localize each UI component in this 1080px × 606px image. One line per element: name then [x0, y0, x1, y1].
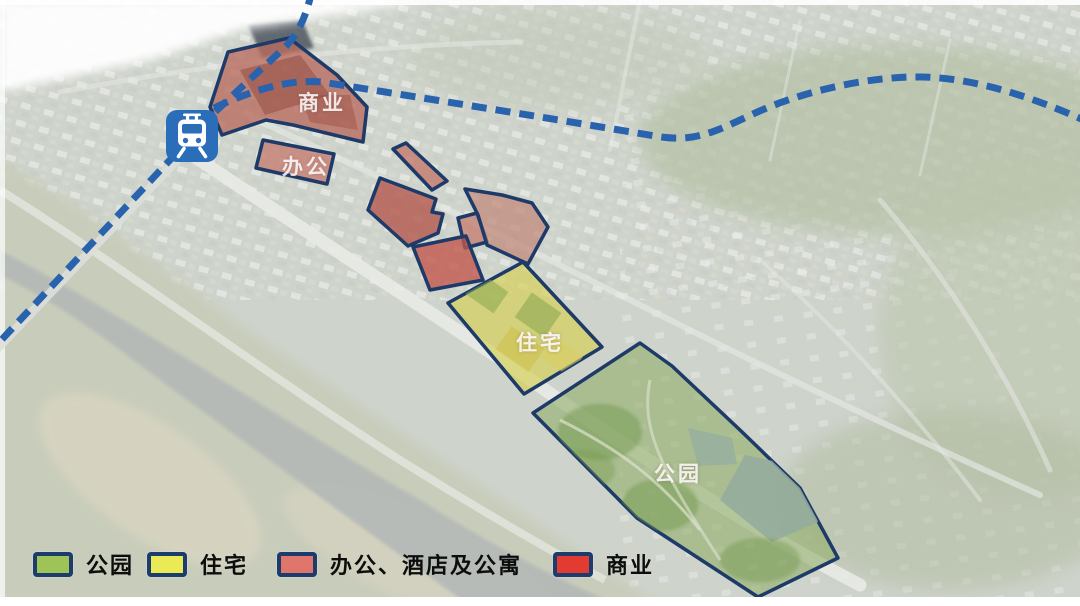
legend-item-residential: 住宅 — [147, 548, 248, 580]
legend: 公园 住宅 办公、酒店及公寓 商业 — [0, 548, 1080, 584]
plan-map-svg — [0, 0, 1080, 606]
legend-swatch-residential — [147, 552, 187, 577]
legend-item-office-hotel-apartment: 办公、酒店及公寓 — [277, 548, 522, 580]
zone-label-park: 公园 — [654, 458, 702, 488]
legend-item-park: 公园 — [33, 548, 134, 580]
legend-swatch-commercial — [553, 552, 593, 577]
plan-map: 商业 办公 住宅 公园 公园 住宅 办公、酒店及公寓 商业 — [0, 0, 1080, 606]
legend-swatch-park — [33, 552, 73, 577]
legend-label-office-hotel-apartment: 办公、酒店及公寓 — [330, 548, 522, 580]
train-station-icon — [166, 110, 218, 162]
legend-label-park: 公园 — [86, 548, 134, 580]
legend-swatch-office-hotel-apartment — [277, 552, 317, 577]
zone-label-residential: 住宅 — [516, 327, 564, 357]
legend-label-commercial: 商业 — [606, 548, 654, 580]
legend-label-residential: 住宅 — [200, 548, 248, 580]
zone-label-office: 办公 — [282, 151, 330, 181]
legend-item-commercial: 商业 — [553, 548, 654, 580]
zone-label-commercial: 商业 — [298, 87, 346, 117]
greenery-blob — [410, 10, 710, 110]
bottom-margin — [0, 597, 1080, 606]
